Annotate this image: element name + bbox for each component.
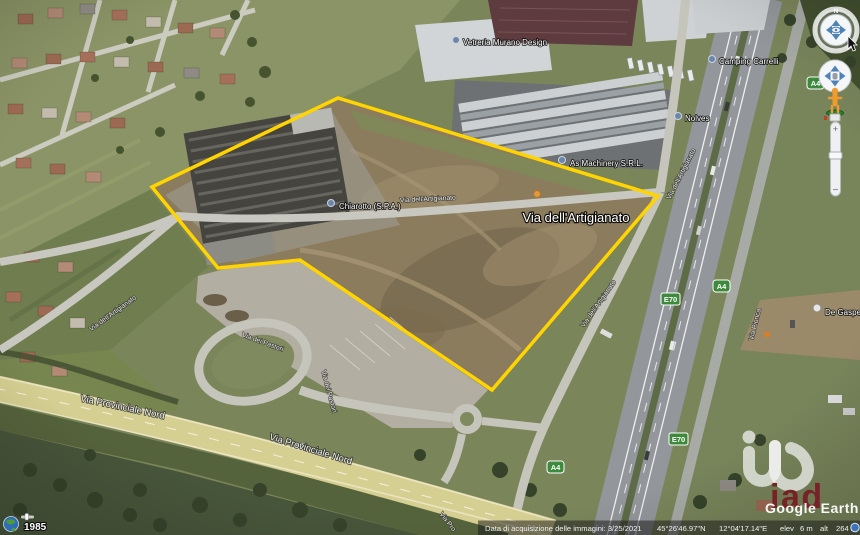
poi-pin-vetreria[interactable] bbox=[453, 37, 460, 44]
svg-text:A4: A4 bbox=[717, 282, 727, 291]
time-globe-icon[interactable] bbox=[4, 517, 19, 532]
svg-text:E70: E70 bbox=[672, 435, 685, 444]
zoom-slider[interactable]: + − bbox=[829, 122, 842, 196]
badge-e70-low: E70 bbox=[669, 433, 688, 445]
badge-e70-mid: E70 bbox=[661, 293, 680, 305]
google-earth-logo: Google Earth bbox=[765, 500, 859, 516]
svg-text:A4: A4 bbox=[551, 463, 561, 472]
poi-pin-machinery[interactable] bbox=[559, 157, 566, 164]
latitude: 45°26'46.97"N bbox=[657, 524, 706, 533]
streetview-dot-icon[interactable] bbox=[534, 191, 541, 198]
imagery-year: 1985 bbox=[24, 522, 47, 533]
longitude: 12°04'17.14"E bbox=[719, 524, 767, 533]
streaming-indicator-icon bbox=[851, 523, 859, 531]
poi-pin-chiarotto[interactable] bbox=[328, 200, 335, 207]
poi-pin-camping[interactable] bbox=[709, 56, 716, 63]
move-joystick[interactable] bbox=[819, 60, 851, 92]
google-earth-viewport[interactable]: Via dell'Artigianato Via dell'Artigianat… bbox=[0, 0, 860, 535]
poi-label-degasperi[interactable]: De Gasperi bbox=[825, 308, 860, 317]
aerial-imagery bbox=[0, 0, 860, 535]
status-bar: Data di acquisizione delle immagini: 3/2… bbox=[478, 521, 860, 535]
poi-pin-nolves[interactable] bbox=[675, 113, 682, 120]
elev-value: 6 m bbox=[800, 524, 813, 533]
poi-pin-degasperi[interactable] bbox=[813, 304, 821, 312]
zoom-slider-handle[interactable] bbox=[829, 152, 842, 159]
poi-label-nolves[interactable]: Nolves bbox=[685, 114, 709, 123]
hand-icon bbox=[833, 73, 838, 80]
zoom-out-button[interactable]: − bbox=[833, 185, 839, 196]
zoom-in-button[interactable]: + bbox=[833, 124, 838, 134]
poi-label-chiarotto[interactable]: Chiarotto (S.P.A.) bbox=[339, 202, 401, 211]
map-canvas[interactable]: Via dell'Artigianato Via dell'Artigianat… bbox=[0, 0, 860, 535]
poi-label-machinery[interactable]: As Machinery S.R.L. bbox=[570, 159, 643, 168]
svg-text:E70: E70 bbox=[664, 295, 677, 304]
time-slider-handle[interactable] bbox=[25, 514, 29, 521]
imagery-date: Data di acquisizione delle immagini: 3/2… bbox=[485, 524, 642, 533]
alt-label: alt bbox=[820, 524, 829, 533]
poi-label-camping[interactable]: Camping Carrelli bbox=[719, 57, 779, 66]
elev-label: elev bbox=[780, 524, 794, 533]
poi-label-vetreria[interactable]: Vetreria Murano Design bbox=[463, 38, 547, 47]
badge-a4-mid: A4 bbox=[713, 280, 730, 292]
badge-a4-low: A4 bbox=[547, 461, 564, 473]
street-label-artigianato-main: Via dell'Artigianato bbox=[522, 210, 629, 225]
